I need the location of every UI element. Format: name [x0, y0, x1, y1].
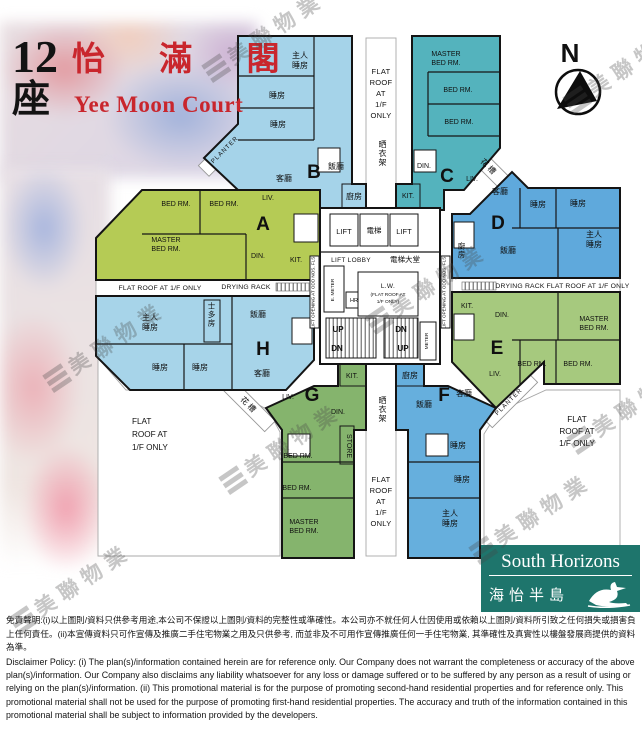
room-label: LIV.	[466, 176, 478, 183]
room-label: KIT.	[461, 303, 473, 310]
room-label: MASTER	[151, 237, 180, 244]
room-label: DIN.	[495, 312, 509, 319]
block-number: 12	[12, 34, 66, 80]
svg-text:FLAT: FLAT	[567, 415, 586, 424]
room-label: BED RM.	[282, 485, 311, 492]
room-label: BED RM.	[563, 361, 592, 368]
svg-text:1/F: 1/F	[375, 508, 387, 517]
title-block: 12 怡 滿 閣 座 Yee Moon Court	[12, 34, 303, 120]
room-label: 睡房	[442, 518, 458, 528]
room-label: 飯廳	[250, 309, 266, 319]
unit-b-letter: B	[307, 162, 321, 183]
room-label: 客廳	[254, 368, 270, 378]
unit-d-letter: D	[491, 213, 505, 234]
svg-text:ROOF: ROOF	[370, 486, 393, 495]
north-label: N	[561, 38, 580, 68]
core: LIFT 電梯 LIFT LIFT LOBBY 電梯大堂 E. METER HR…	[310, 208, 450, 364]
svg-text:ROOF: ROOF	[370, 78, 393, 87]
unit-f-letter: F	[438, 385, 450, 406]
disclaimer-english: Disclaimer Policy: (i) The plan(s)/infor…	[6, 656, 638, 722]
svg-text:1/F: 1/F	[375, 100, 387, 109]
disclaimer-chinese: 免責聲明:(i)以上圖則/資料只供參考用途,本公司不保證以上圖則/資料的完整性或…	[6, 614, 638, 655]
room-label: 睡房	[152, 362, 168, 372]
room-label: 主人	[586, 229, 602, 239]
estate-name-en: South Horizons	[489, 551, 632, 576]
room-label: BED RM.	[517, 361, 546, 368]
room-label: DIN.	[251, 253, 265, 260]
room-label: BED RM.	[579, 325, 608, 332]
room-label: 睡房	[454, 474, 470, 484]
room-label: 廚房	[402, 370, 418, 380]
svg-text:FLAT: FLAT	[372, 475, 391, 484]
room-label: 客廳	[456, 388, 472, 398]
lift-left-label: LIFT	[336, 227, 352, 236]
unit-g-letter: G	[305, 385, 320, 406]
stair-dn-left-label: DN	[331, 344, 343, 353]
room-label: 主人	[142, 312, 158, 322]
svg-text:FLAT ROOF AT 1/F ONLY: FLAT ROOF AT 1/F ONLY	[119, 285, 202, 292]
hose-reel-label: HR	[350, 298, 358, 304]
building-name-en: Yee Moon Court	[74, 90, 243, 120]
svg-text:ONLY: ONLY	[370, 111, 391, 120]
svg-text:DRYING RACK: DRYING RACK	[221, 284, 271, 291]
lightwell-label-3: 1/F ONLY)	[377, 299, 400, 305]
e-meter-label: E. METER	[330, 278, 336, 301]
svg-text:FLAT: FLAT	[132, 417, 151, 426]
estate-name-cn: 海怡半島	[489, 584, 569, 605]
room-label: LIV.	[489, 371, 501, 378]
room-label: LIV.	[282, 394, 294, 401]
room-label: MASTER	[579, 316, 608, 323]
room-label: 客廳	[492, 186, 508, 196]
svg-text:1/F ONLY: 1/F ONLY	[132, 443, 168, 452]
estate-logo: South Horizons 海怡半島	[481, 545, 640, 612]
room-label: BED RM.	[444, 119, 473, 126]
lightwell-label-1: L.W.	[381, 283, 395, 290]
stair-up-right-label: UP	[397, 344, 409, 353]
unit-a-letter: A	[256, 214, 270, 235]
lift-middle-label: 電梯	[367, 225, 382, 235]
unit-c-letter: C	[440, 166, 454, 187]
room-label: MASTER	[289, 519, 318, 526]
svg-text:FLAT ROOF AT 1/F ONLY: FLAT ROOF AT 1/F ONLY	[547, 283, 630, 290]
unit-h-polygon	[96, 296, 314, 390]
room-label: BED RM.	[209, 201, 238, 208]
room-label: 睡房	[530, 199, 546, 209]
room-label: BED RM.	[283, 453, 312, 460]
svg-text:FLAT: FLAT	[372, 67, 391, 76]
block-word: 座	[12, 80, 66, 120]
room-label: 飯廳	[416, 399, 432, 409]
room-label: BED RM.	[161, 201, 190, 208]
room-label: 主人	[442, 508, 458, 518]
svg-text:ONLY: ONLY	[370, 519, 391, 528]
unit-d-polygon	[452, 172, 620, 278]
room-label: 睡房	[570, 198, 586, 208]
room-label: STORE	[345, 434, 352, 458]
room-label: BED RM.	[289, 528, 318, 535]
room-label: KIT.	[290, 257, 302, 264]
building-name-cn: 怡 滿 閣	[72, 40, 303, 80]
room-label: KIT.	[346, 373, 358, 380]
lightwell-label-2: (FLAT ROOF AT	[371, 292, 406, 298]
dove-icon	[586, 580, 632, 608]
north-arrow: N	[556, 38, 600, 114]
room-label: 客廳	[276, 173, 292, 183]
meter-label: METER	[424, 332, 430, 349]
svg-text:AT: AT	[376, 497, 386, 506]
lift-lobby-en-label: LIFT LOBBY	[331, 257, 371, 264]
room-label: 飯廳	[328, 161, 344, 171]
svg-text:DRYING RACK: DRYING RACK	[495, 283, 545, 290]
svg-text:ROOF AT: ROOF AT	[132, 430, 167, 439]
room-label: DIN.	[331, 409, 345, 416]
svg-text:1/F ONLY: 1/F ONLY	[559, 439, 595, 448]
room-label: 廚房	[346, 191, 362, 201]
unit-a-polygon	[96, 190, 320, 280]
room-label: 睡房	[142, 322, 158, 332]
unit-h-letter: H	[256, 339, 270, 360]
lift-opening-left-label: LIFT OPENING AT ODD NOS. FLS.	[311, 255, 316, 328]
lift-lobby-cn-label: 電梯大堂	[390, 254, 420, 264]
lift-right-label: LIFT	[396, 227, 412, 236]
promo-floor-plan-page: LIFT 電梯 LIFT LIFT LOBBY 電梯大堂 E. METER HR…	[0, 0, 642, 737]
svg-text:AT: AT	[376, 89, 386, 98]
lift-opening-right-label: LIFT OPENING AT ODD NOS. FLS.	[442, 255, 447, 328]
room-label: 睡房	[586, 239, 602, 249]
room-label: KIT.	[402, 193, 414, 200]
unit-e-letter: E	[491, 338, 504, 359]
room-label: BED RM.	[431, 60, 460, 67]
room-label: 睡房	[450, 440, 466, 450]
stair-up-left-label: UP	[332, 325, 344, 334]
room-label: DIN.	[417, 163, 431, 170]
room-label: 睡房	[192, 362, 208, 372]
room-label: 飯廳	[500, 245, 516, 255]
room-label: BED RM.	[151, 246, 180, 253]
room-label: MASTER	[431, 51, 460, 58]
svg-text:ROOF AT: ROOF AT	[559, 427, 594, 436]
flat-roof-top-strip	[366, 38, 396, 210]
room-label: BED RM.	[443, 87, 472, 94]
room-label: LIV.	[262, 195, 274, 202]
room-label: 睡房	[270, 119, 286, 129]
stair-dn-right-label: DN	[395, 325, 407, 334]
